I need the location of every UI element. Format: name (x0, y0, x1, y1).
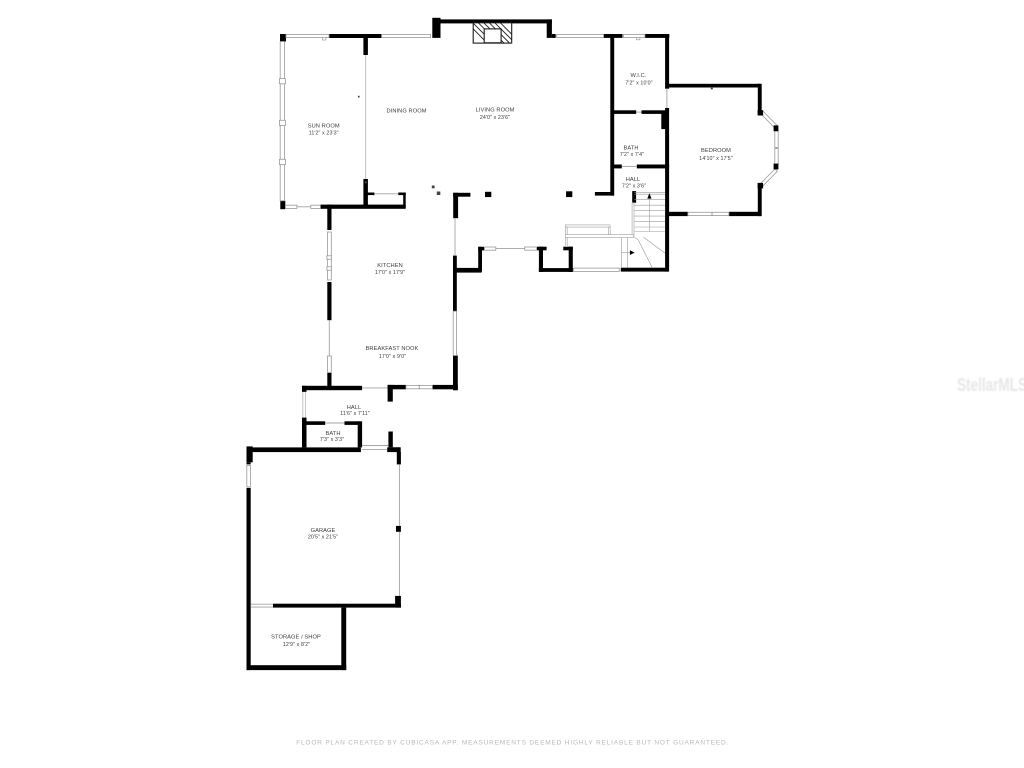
svg-text:BATH: BATH (325, 431, 340, 437)
svg-text:HALL: HALL (626, 177, 641, 183)
svg-text:DINING ROOM: DINING ROOM (386, 109, 426, 115)
svg-text:7'2" x 10'0": 7'2" x 10'0" (625, 81, 652, 87)
svg-text:11'2" x 23'3": 11'2" x 23'3" (309, 131, 339, 137)
svg-text:STORAGE / SHOP: STORAGE / SHOP (271, 635, 321, 641)
svg-text:11'6" x 7'11": 11'6" x 7'11" (340, 411, 370, 417)
svg-text:24'0" x 23'6": 24'0" x 23'6" (480, 115, 510, 121)
svg-text:FLOOR PLAN CREATED BY CUBICASA: FLOOR PLAN CREATED BY CUBICASA APP. MEAS… (296, 740, 729, 747)
svg-text:GARAGE: GARAGE (311, 528, 336, 534)
svg-text:BATH: BATH (623, 146, 638, 152)
svg-text:7'3" x 3'3": 7'3" x 3'3" (320, 437, 344, 443)
svg-text:SUN ROOM: SUN ROOM (308, 124, 340, 130)
svg-text:LIVING ROOM: LIVING ROOM (476, 108, 515, 114)
svg-text:12'9" x 8'2": 12'9" x 8'2" (283, 642, 310, 648)
svg-text:17'0" x 17'9": 17'0" x 17'9" (375, 270, 405, 276)
svg-text:StellarMLS: StellarMLS (957, 375, 1024, 395)
svg-text:14'10" x 17'5": 14'10" x 17'5" (699, 156, 732, 162)
svg-text:7'2" x 7'4": 7'2" x 7'4" (620, 152, 644, 158)
svg-text:7'2" x 3'6": 7'2" x 3'6" (622, 183, 646, 189)
svg-text:20'5" x 21'5": 20'5" x 21'5" (308, 535, 338, 541)
svg-text:W.I.C.: W.I.C. (631, 73, 647, 79)
svg-text:BREAKFAST NOOK: BREAKFAST NOOK (366, 346, 419, 352)
svg-text:KITCHEN: KITCHEN (377, 263, 403, 269)
svg-text:BEDROOM: BEDROOM (701, 148, 731, 154)
svg-text:17'0" x 9'0": 17'0" x 9'0" (379, 354, 406, 360)
